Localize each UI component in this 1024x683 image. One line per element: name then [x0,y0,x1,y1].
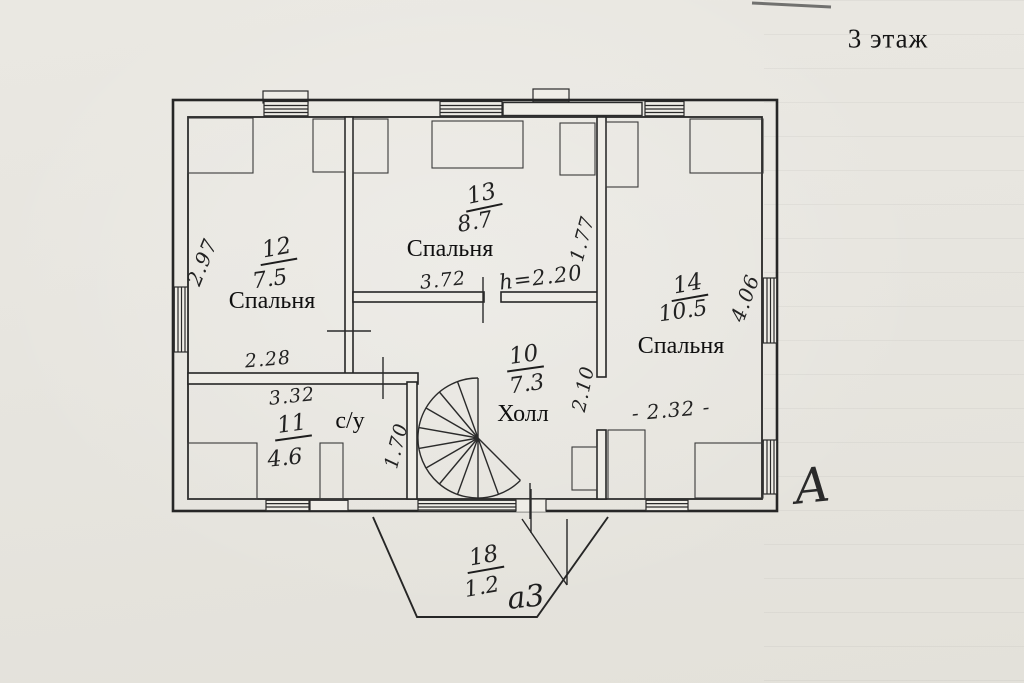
room-12-label: Спальня [229,289,316,313]
scanned-floor-plan-page: 3 этаж 12 7.5 Спальня 13 8.7 Спальня 14 … [0,0,1024,683]
room-14-label: Спальня [638,334,725,358]
window-right-1 [763,278,776,343]
window-left [174,287,187,352]
scan-artifact-line [752,3,831,7]
spiral-staircase [418,378,530,519]
axis-mark-a: А [791,460,832,512]
window-right-2 [763,440,776,494]
room-11-area: 4.6 [266,446,303,472]
room-11-label: с/у [335,409,364,433]
room-11-number: 11 [272,411,313,442]
window-bottom-1 [266,500,309,510]
dim-room13-width: 3.72 [419,269,467,293]
room-18-area: 1.2 [463,574,501,602]
dim-room11-width: 3.32 [268,385,316,409]
wall-room13-hall-left [353,292,484,302]
wall-hall-room14-lower [597,430,606,499]
window-bottom-2 [646,500,688,510]
balcony-mark-a3: а3 [506,581,546,615]
room-10-label: Холл [497,402,548,426]
room-10-number: 10 [504,342,545,373]
window-top-wide-sill [503,103,642,116]
window-top-1 [264,102,308,116]
room-10-area: 7.3 [508,372,546,399]
wall-room13-hall-right [501,292,598,302]
window-top-2 [440,102,502,116]
room-13-area: 8.7 [456,209,494,237]
room-13-label: Спальня [407,237,494,261]
floor-title: 3 этаж [848,26,929,53]
bottom-sill [310,500,348,510]
dim-room12-width: 2.28 [244,349,292,372]
window-top-3 [645,102,684,116]
wall-hall-room14-upper [597,117,606,377]
dim-room14-width: - 2.32 - [631,397,711,424]
wall-room12-room13 [345,117,353,377]
entry-steps [418,500,516,511]
